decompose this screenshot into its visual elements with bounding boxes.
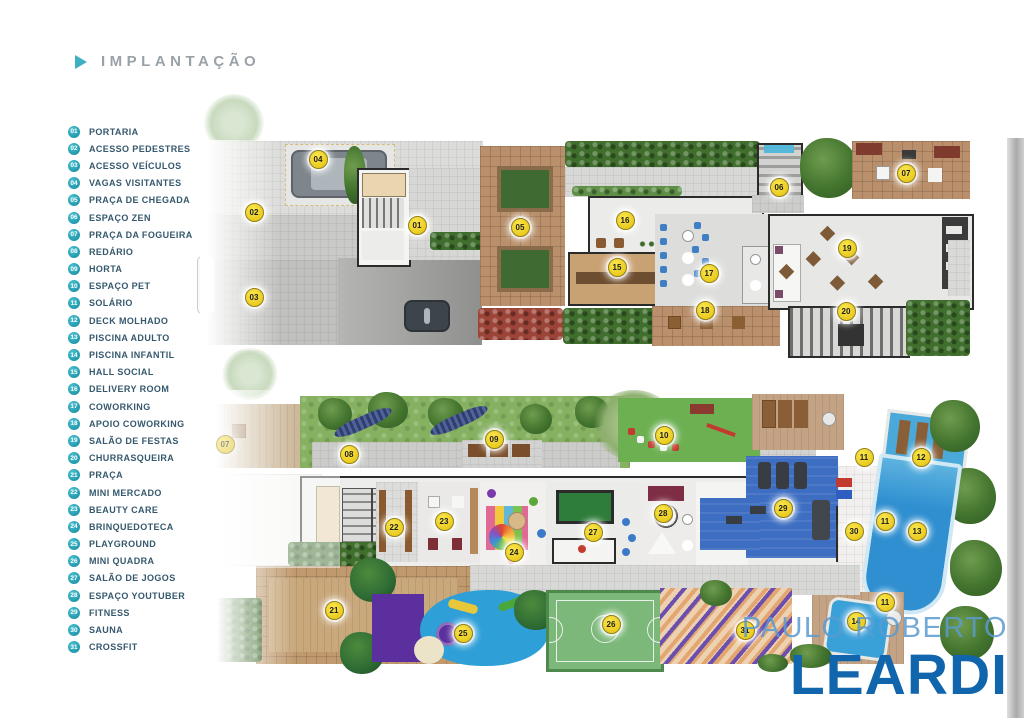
watermark-line2: LEARDI: [742, 647, 1008, 704]
pet-bench: [690, 404, 714, 414]
pool-table: [556, 490, 614, 524]
kids-table: [508, 512, 526, 530]
wet-lounger: [896, 420, 911, 455]
air-hockey-dot: [578, 545, 586, 553]
bar-stool: [622, 518, 630, 526]
beauty-chair: [428, 538, 438, 550]
youtuber-chair: [682, 514, 693, 525]
site-plan-lower: [0, 0, 1024, 718]
pouf: [487, 489, 496, 498]
hedge: [930, 400, 980, 452]
watermark: PAULO ROBERTO LEARDI: [742, 614, 1008, 704]
gym-bench: [726, 516, 742, 524]
youtuber-rug: [652, 502, 680, 530]
youtuber-sofa: [648, 486, 684, 501]
pool-lounger-blue: [836, 490, 852, 499]
solario-table: [822, 412, 836, 426]
lounger: [762, 400, 776, 428]
palm: [520, 404, 552, 434]
plant: [700, 580, 732, 606]
pet-agility: [628, 428, 635, 435]
court-center-circle: [591, 615, 619, 643]
beauty-station: [428, 496, 440, 508]
horta-bed: [468, 444, 486, 457]
fade-overlay: [200, 140, 280, 350]
zone-mini-quadra: [546, 590, 664, 672]
mercado-shelf: [379, 490, 386, 552]
hedge: [950, 540, 1002, 596]
sand-circle: [414, 636, 444, 664]
gym-equipment: [812, 500, 830, 540]
pool-lounger-red: [836, 478, 852, 487]
page: IMPLANTAÇÃO 01PORTARIA02ACESSO PEDESTRES…: [0, 0, 1024, 718]
zone-fitness-ext: [700, 498, 760, 550]
youtuber-table: [648, 532, 676, 554]
stairs-divider: [371, 488, 373, 550]
treadmill: [758, 462, 771, 489]
zone-espaco-pet: [618, 398, 760, 462]
beauty-wood-strip: [470, 488, 478, 554]
fade-overlay: [210, 470, 340, 568]
page-edge-strip: [1007, 138, 1024, 718]
watermark-line1: PAULO ROBERTO: [742, 614, 1008, 643]
